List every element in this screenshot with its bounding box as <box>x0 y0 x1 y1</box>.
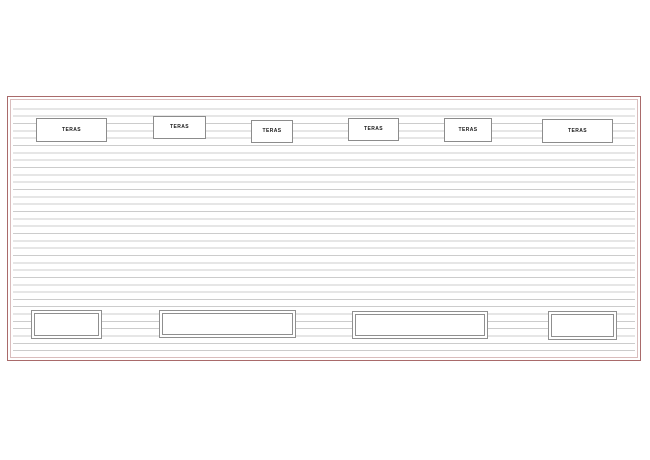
teras-box: TERAS <box>36 118 107 142</box>
teras-label: TERAS <box>364 127 383 132</box>
window-frame-inner <box>34 313 99 336</box>
teras-box: TERAS <box>153 116 206 139</box>
window-frame-inner <box>162 313 293 335</box>
teras-label: TERAS <box>568 129 587 134</box>
drawing-canvas: TERAS TERAS TERAS TERAS TERAS TERAS <box>0 0 650 460</box>
teras-label: TERAS <box>263 129 282 134</box>
teras-box: TERAS <box>251 120 293 143</box>
window-frame-inner <box>551 314 614 337</box>
window-frame <box>159 310 296 338</box>
window-frame <box>352 311 488 339</box>
teras-label: TERAS <box>459 128 478 133</box>
window-frame-inner <box>355 314 485 336</box>
teras-box: TERAS <box>542 119 613 143</box>
window-frame <box>31 310 102 339</box>
teras-label: TERAS <box>62 128 81 133</box>
window-frame <box>548 311 617 340</box>
teras-label: TERAS <box>170 125 189 130</box>
teras-box: TERAS <box>348 118 399 141</box>
teras-box: TERAS <box>444 118 492 142</box>
